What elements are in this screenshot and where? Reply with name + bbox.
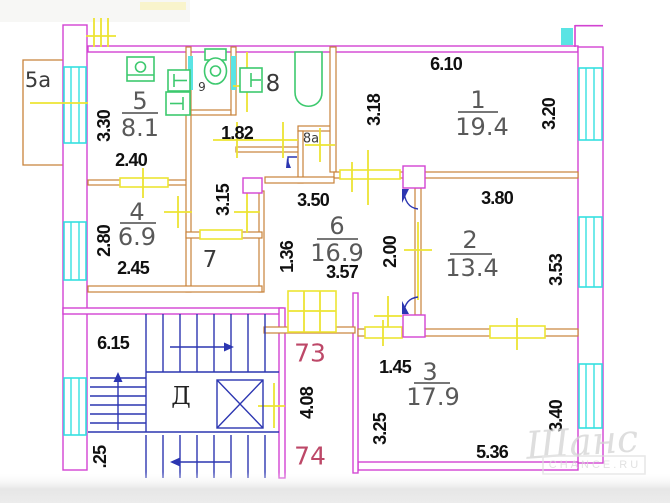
wc-sink-icon [168, 70, 190, 91]
dim-1-82: 1.82 [221, 123, 254, 143]
dim-2-00: 2.00 [380, 235, 400, 268]
room-5-number: 5 [132, 87, 147, 115]
bathtub-icon [295, 52, 322, 106]
dim-3-80: 3.80 [481, 188, 514, 208]
room-6-number: 6 [329, 212, 344, 240]
vestibule-wall-right [353, 293, 358, 473]
room-2-number: 2 [462, 226, 477, 254]
bottom-fade [0, 472, 670, 503]
apartment-number-73: 73 [294, 339, 326, 368]
stairwell-wall-top [63, 308, 283, 314]
dim-6-15: 6.15 [97, 333, 130, 353]
window-room2 [579, 217, 602, 287]
dim-2-45: 2.45 [117, 258, 150, 278]
pilaster-hall [243, 178, 262, 193]
pilaster-room2 [403, 315, 425, 337]
apartment-number-74: 74 [294, 442, 326, 471]
toilet-icon [205, 49, 227, 84]
elevator-icon [217, 380, 263, 428]
floor-plan-page: 1 19.4 2 13.4 3 17.9 4 6.9 5 8.1 6 16.9 … [0, 0, 670, 503]
door-flag-room2-bottom [402, 301, 409, 314]
dim-6-10: 6.10 [430, 54, 463, 74]
room-3-number: 3 [422, 358, 437, 386]
dim-3-15: 3.15 [213, 183, 233, 216]
window-room4 [64, 222, 86, 280]
dim-2-40: 2.40 [115, 150, 148, 170]
floor-plan: 1 19.4 2 13.4 3 17.9 4 6.9 5 8.1 6 16.9 … [0, 0, 670, 503]
dim-1-45: 1.45 [379, 357, 412, 377]
dim-3-53: 3.53 [546, 253, 566, 286]
dim-5-36: 5.36 [476, 442, 509, 462]
stair-arrow-up-icon [114, 372, 123, 430]
dim-3-50: 3.50 [297, 190, 330, 210]
closet-label: 8а [303, 132, 319, 147]
dim-1-36: 1.36 [277, 240, 297, 273]
balcony-label: 5а [25, 68, 51, 92]
room-1-number: 1 [470, 86, 485, 114]
watermark-caption: CHANCE.RU [549, 459, 641, 471]
dim-0-25: .25 [90, 445, 110, 468]
fixtures [127, 49, 322, 115]
window-room1 [579, 68, 602, 140]
room-5-area: 8.1 [121, 114, 159, 142]
stairs-lower-flight [146, 435, 265, 478]
stair-arrow-left-icon [170, 458, 230, 467]
room-4-number: 4 [129, 198, 144, 226]
pilaster-room1 [403, 166, 425, 188]
dim-2-80: 2.80 [94, 224, 114, 257]
wc-label: 9 [198, 80, 206, 94]
watermark: Шанс CHANCE.RU [523, 416, 645, 474]
dim-3-18: 3.18 [364, 93, 384, 126]
bath-sink-icon [240, 68, 262, 92]
dim-3-30: 3.30 [94, 109, 114, 142]
top-faint-mark [140, 2, 186, 10]
dim-3-25: 3.25 [370, 412, 390, 445]
bathroom-label: 8 [266, 71, 281, 97]
elevator-label: Д [171, 382, 191, 410]
dim-3-20: 3.20 [539, 97, 559, 130]
stove-icon [127, 57, 154, 81]
dim-4-08: 4.08 [297, 386, 317, 419]
kitchen-sink-icon [166, 92, 190, 115]
dim-3-57: 3.57 [326, 262, 359, 282]
glazed-strip-bath [231, 56, 236, 90]
door-markers [30, 18, 545, 428]
room-1-area: 19.4 [455, 113, 508, 141]
room-4-area: 6.9 [118, 223, 156, 251]
vent-window-top-right [561, 28, 573, 45]
stairs-upper-flight [146, 314, 279, 372]
room-3-area: 17.9 [406, 383, 459, 411]
window-kitchen [64, 67, 86, 143]
pantry-label: 7 [203, 247, 218, 273]
room-2-area: 13.4 [445, 254, 498, 282]
window-stairwell [64, 378, 86, 435]
